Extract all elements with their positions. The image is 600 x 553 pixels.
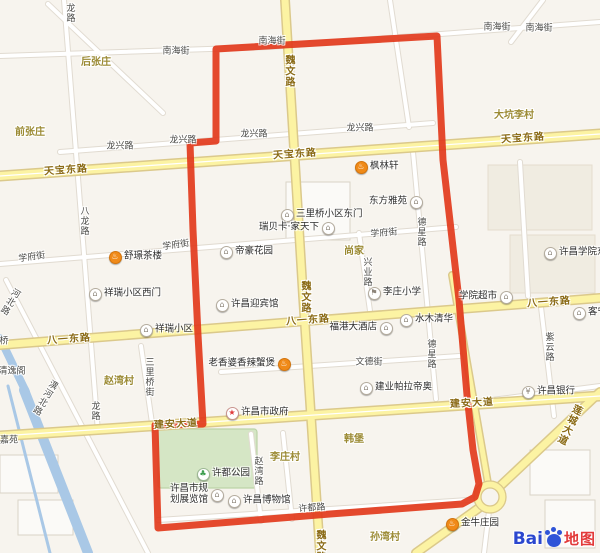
poi-label-line: 划展览馆 [170,495,208,506]
poi-layer: ♨枫林轩⌂东方雅苑⌂三里桥小区东门⌂瑞贝卡·家天下⌂帝豪花园♨舒璟茶楼⌂祥瑞小区… [0,0,600,553]
food-poi-icon[interactable]: ♨ [446,518,459,531]
building-poi-icon[interactable]: ⌂ [360,382,373,395]
poi-label[interactable]: 李庄小学 [383,288,421,299]
poi-label[interactable]: 帝豪花园 [235,247,273,258]
shop-poi-icon[interactable]: ⌂ [573,307,586,320]
poi-label[interactable]: 学院超市 [459,292,497,303]
poi-label[interactable]: 许昌市政府 [241,408,289,419]
poi-label[interactable]: 祥瑞小区 [155,325,193,336]
baidu-logo-text: Bai [513,529,543,549]
building-poi-icon[interactable]: ⌂ [410,196,423,209]
museum-poi-icon[interactable]: ⌂ [228,495,241,508]
baidu-logo-suffix: 地图 [564,528,596,549]
poi-label[interactable]: 东方雅苑 [369,197,407,208]
poi-label[interactable]: 许都公园 [212,469,250,480]
poi-label[interactable]: 舒璟茶楼 [124,252,162,263]
building-poi-icon[interactable]: ⌂ [322,222,335,235]
poi-label[interactable]: 瑞贝卡·家天下 [259,223,319,234]
government-poi-icon[interactable]: ★ [226,407,239,420]
museum-poi-icon[interactable]: ⌂ [211,489,224,502]
map-viewport[interactable]: 南海街南海街南海街南海街龙兴路龙兴路龙兴路龙兴路学府街学府街学府街文德街许都路龙… [0,0,600,553]
food-poi-icon[interactable]: ♨ [278,358,291,371]
poi-label[interactable]: 许昌迎宾馆 [231,300,279,311]
poi-label[interactable]: 许昌银行 [537,387,575,398]
poi-label[interactable]: 建业帕拉帝奥 [375,383,432,394]
poi-label[interactable]: 许昌学院东村 [559,248,600,259]
poi-label[interactable]: 许昌博物馆 [243,496,291,507]
poi-label[interactable]: 客宁 [588,308,600,319]
poi-label[interactable]: 祥瑞小区西门 [104,289,161,300]
building-poi-icon[interactable]: ⌂ [89,288,102,301]
poi-label[interactable]: 三里桥小区东门 [296,210,363,221]
poi-label[interactable]: 许昌市规划展览馆 [170,484,208,506]
food-poi-icon[interactable]: ♨ [109,251,122,264]
poi-label[interactable]: 福港大酒店 [329,323,377,334]
park-poi-icon[interactable]: ♣ [197,468,210,481]
bank-poi-icon[interactable]: ¥ [522,386,535,399]
baidu-logo: Bai 地图 [513,528,596,549]
hotel-poi-icon[interactable]: ⌂ [380,322,393,335]
poi-label[interactable]: 老香婆香辣蟹煲 [208,359,275,370]
building-poi-icon[interactable]: ⌂ [220,246,233,259]
building-poi-icon[interactable]: ⌂ [140,324,153,337]
shop-poi-icon[interactable]: ⌂ [500,291,513,304]
building-poi-icon[interactable]: ⌂ [400,314,413,327]
poi-label[interactable]: 水木清华 [415,315,453,326]
hotel-poi-icon[interactable]: ⌂ [216,299,229,312]
school-poi-icon[interactable]: ⚑ [368,287,381,300]
building-poi-icon[interactable]: ⌂ [281,209,294,222]
poi-label[interactable]: 金牛庄园 [461,519,499,530]
food-poi-icon[interactable]: ♨ [355,161,368,174]
college-poi-icon[interactable]: ⌂ [544,247,557,260]
poi-label[interactable]: 枫林轩 [370,162,399,173]
baidu-paw-icon [547,534,561,547]
